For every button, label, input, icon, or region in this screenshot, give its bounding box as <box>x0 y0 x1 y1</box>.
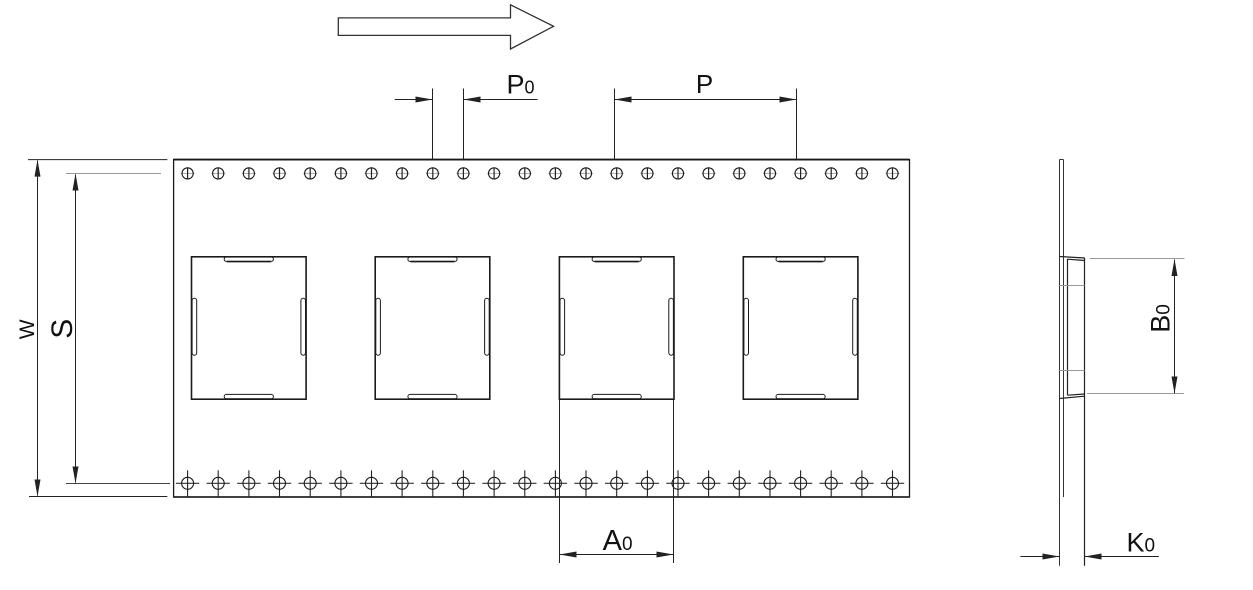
svg-text:W: W <box>16 319 39 339</box>
svg-text:P0: P0 <box>507 70 535 100</box>
svg-text:S: S <box>46 319 79 339</box>
svg-text:P: P <box>696 69 713 99</box>
svg-text:A0: A0 <box>603 525 633 557</box>
svg-text:K0: K0 <box>1127 527 1156 557</box>
svg-text:B0: B0 <box>1146 304 1176 333</box>
